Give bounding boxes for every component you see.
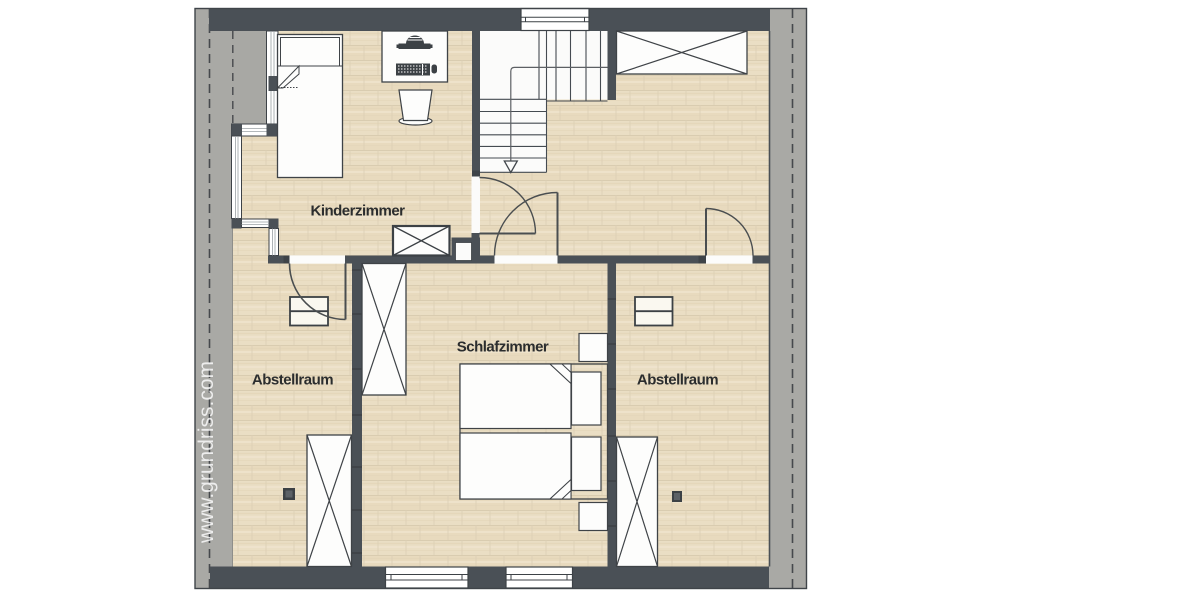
svg-text:www.grundriss.com: www.grundriss.com	[195, 361, 218, 544]
svg-text:Schlafzimmer: Schlafzimmer	[457, 339, 549, 356]
svg-text:Abstellraum: Abstellraum	[252, 372, 333, 389]
svg-text:Abstellraum: Abstellraum	[637, 372, 718, 389]
svg-text:Kinderzimmer: Kinderzimmer	[310, 203, 405, 220]
